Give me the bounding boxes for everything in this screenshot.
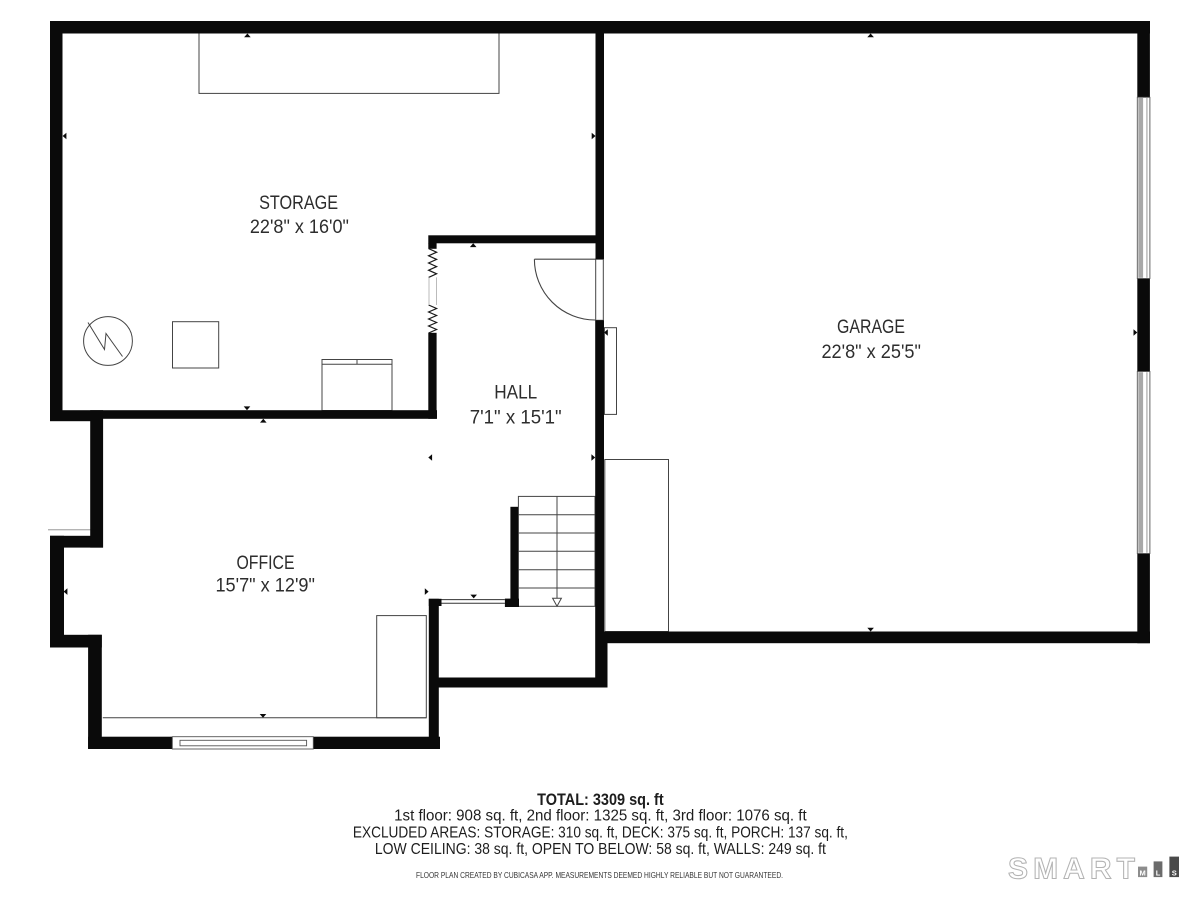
svg-text:L: L <box>1156 868 1161 877</box>
svg-text:M: M <box>1139 868 1145 877</box>
svg-text:FLOOR PLAN CREATED BY CUBICASA: FLOOR PLAN CREATED BY CUBICASA APP. MEAS… <box>416 870 783 880</box>
svg-text:OFFICE: OFFICE <box>237 552 295 574</box>
svg-text:15'7" x 12'9": 15'7" x 12'9" <box>215 575 315 597</box>
svg-text:HALL: HALL <box>494 382 537 404</box>
svg-text:1st floor: 908 sq. ft, 2nd flo: 1st floor: 908 sq. ft, 2nd floor: 1325 s… <box>394 807 807 824</box>
svg-text:7'1" x 15'1": 7'1" x 15'1" <box>470 407 562 429</box>
svg-text:STORAGE: STORAGE <box>259 192 338 214</box>
svg-text:SMART: SMART <box>1008 853 1135 886</box>
svg-text:EXCLUDED AREAS: STORAGE: 310 s: EXCLUDED AREAS: STORAGE: 310 sq. ft, DEC… <box>353 824 848 841</box>
svg-text:GARAGE: GARAGE <box>837 316 905 338</box>
svg-text:22'8" x 16'0": 22'8" x 16'0" <box>250 216 349 238</box>
svg-text:S: S <box>1172 868 1177 877</box>
svg-text:LOW CEILING: 38 sq. ft, OPEN T: LOW CEILING: 38 sq. ft, OPEN TO BELOW: 5… <box>375 841 826 858</box>
svg-text:22'8" x 25'5": 22'8" x 25'5" <box>821 341 921 363</box>
